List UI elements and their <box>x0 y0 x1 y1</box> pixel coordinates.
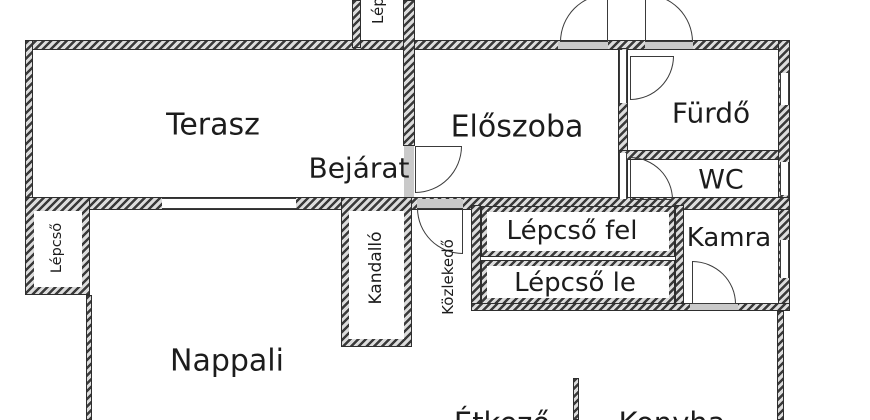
wall-right-lower <box>777 311 784 420</box>
label-kandallo: Kandalló <box>366 231 386 304</box>
room-label-wc: WC <box>698 165 744 196</box>
label-lepcso-fel: Lépcső fel <box>507 216 638 246</box>
door-arc-bejarat <box>415 146 462 193</box>
window-terasz <box>162 198 296 209</box>
wall-kozlekedo-stairs <box>471 205 481 310</box>
room-label-eloszoba: Előszoba <box>451 110 584 145</box>
wall-middle-bottom <box>471 303 790 311</box>
wall-nappali-left <box>86 295 92 420</box>
label-lepcso-le: Lépcső le <box>514 268 636 298</box>
wall-left-outer <box>25 40 33 207</box>
window-kamra <box>780 240 789 278</box>
label-lepcso-top: Lépcső <box>369 0 387 24</box>
door-arc-kamra <box>692 261 736 304</box>
wall-lower-middle <box>573 378 579 420</box>
door-opening-wc <box>619 153 627 199</box>
room-label-konyha-partial: Konyha <box>618 406 725 420</box>
label-bejarat: Bejárat <box>308 152 409 185</box>
wall-stairs-kamra <box>675 205 684 308</box>
floor-plan: Terasz Előszoba Bejárat Fürdő WC Kamra L… <box>0 0 870 420</box>
label-kozlekedo: Közlekedő <box>439 239 457 315</box>
door-arc-top-right <box>645 0 693 42</box>
wall-terasz-eloszoba <box>403 0 415 146</box>
door-arc-wc <box>630 157 673 200</box>
room-label-terasz: Terasz <box>166 108 260 143</box>
door-opening-top-left <box>558 41 608 49</box>
window-wc <box>780 162 789 195</box>
door-arc-furdo <box>630 56 674 100</box>
room-label-kamra: Kamra <box>687 223 771 253</box>
door-arc-top-left <box>560 0 608 42</box>
door-opening-top-right <box>645 41 693 49</box>
window-furdo <box>780 73 789 105</box>
room-label-nappali: Nappali <box>170 344 284 379</box>
label-lepcso-left: Lépcső <box>49 223 65 273</box>
door-opening-furdo <box>619 50 627 103</box>
wall-top-stair-room <box>352 0 361 48</box>
door-opening-kamra <box>690 304 738 310</box>
door-opening-kozlekedo <box>417 199 463 208</box>
room-label-furdo: Fürdő <box>672 97 750 130</box>
room-label-etkezo-partial: Étkező <box>454 406 550 420</box>
